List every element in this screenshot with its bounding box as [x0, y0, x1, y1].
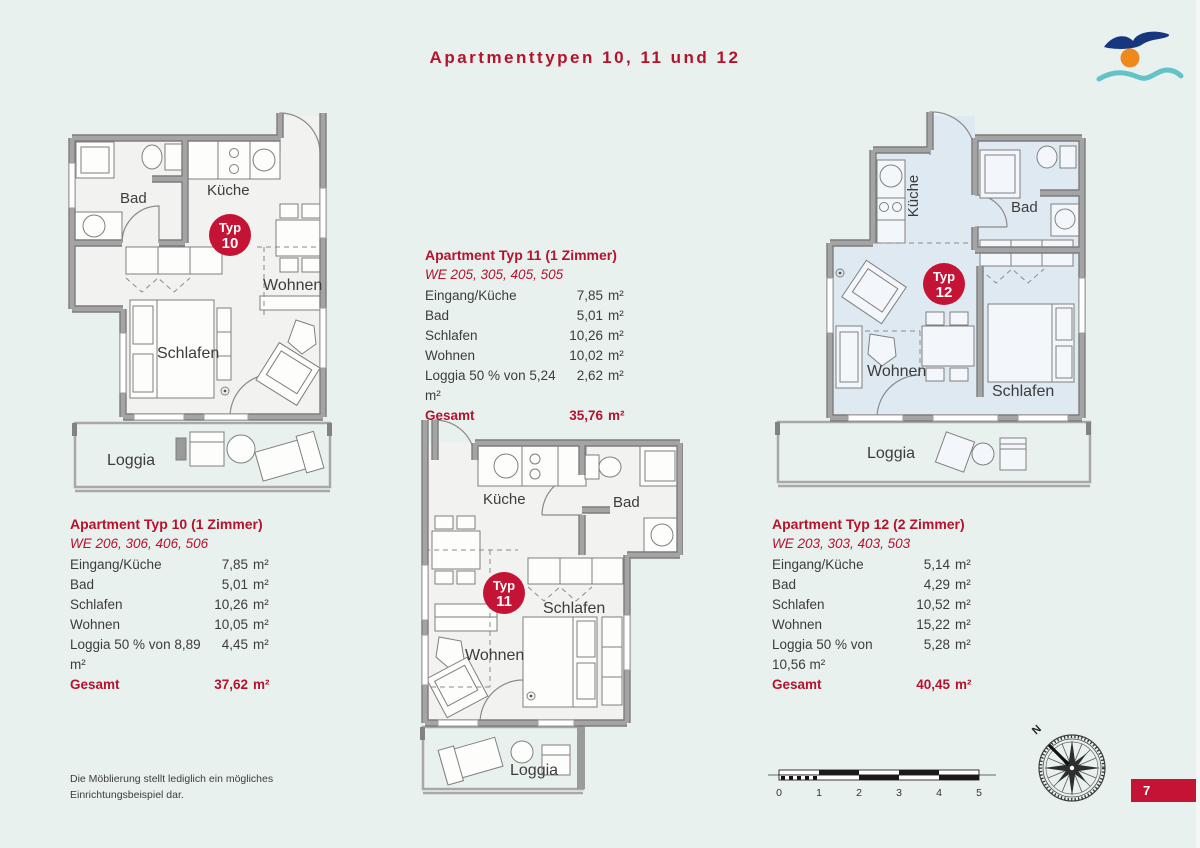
kitchen-counter	[478, 446, 586, 486]
kitchen-counter	[188, 141, 280, 179]
page-edge	[1196, 0, 1200, 848]
compass-north-label: N	[1030, 723, 1044, 737]
loggia-furniture	[176, 431, 324, 485]
disclaimer: Die Möblierung stellt lediglich ein mögl…	[70, 772, 273, 804]
brochure-page: Apartmenttypen 10, 11 und 12	[0, 0, 1200, 848]
gull-icon	[1104, 32, 1169, 49]
typ10-badge: Typ 10	[209, 214, 251, 256]
floorplan-typ10: Bad Küche Wohnen Schlafen Loggia Typ 10	[64, 108, 334, 498]
loggia-typ12	[778, 422, 1090, 482]
room-label-kueche: Küche	[207, 182, 250, 199]
area-row: Loggia 50 % von 10,56 m²5,28m²	[772, 635, 980, 675]
area-row: Wohnen10,05m²	[70, 615, 278, 635]
room-label-wohnen: Wohnen	[867, 363, 926, 380]
area-row: Loggia 50 % von 8,89 m²4,45m²	[70, 635, 278, 675]
area-row: Eingang/Küche7,85m²	[70, 555, 278, 575]
scale-label: 2	[856, 787, 862, 799]
area-row: Bad4,29m²	[772, 575, 980, 595]
loggia-furniture	[935, 432, 1026, 472]
bedroom-furniture	[523, 558, 623, 707]
area-row: Eingang/Küche7,85m²	[425, 286, 633, 306]
svg-text:12: 12	[936, 284, 953, 301]
area-row: Schlafen10,52m²	[772, 595, 980, 615]
sun-icon	[1121, 49, 1140, 68]
room-label-bad: Bad	[613, 494, 640, 511]
svg-text:Typ: Typ	[493, 578, 515, 593]
scale-label: 1	[816, 787, 822, 799]
page-number-badge: 7	[1131, 779, 1196, 802]
bedroom-furniture	[988, 304, 1074, 382]
room-label-bad: Bad	[120, 190, 147, 207]
area-row: Wohnen15,22m²	[772, 615, 980, 635]
room-label-schlafen: Schlafen	[543, 600, 605, 617]
typ10-data-table: Apartment Typ 10 (1 Zimmer) WE 206, 306,…	[70, 514, 278, 695]
floorplan-typ11: Küche Bad Schlafen Wohnen Loggia Typ 11	[418, 415, 683, 810]
compass-rose: N	[1022, 718, 1122, 818]
table-heading: Apartment Typ 11 (1 Zimmer)	[425, 245, 633, 265]
room-label-kueche: Küche	[905, 175, 922, 218]
area-row: Bad5,01m²	[70, 575, 278, 595]
we-units-line: WE 203, 303, 403, 503	[772, 534, 980, 554]
scale-bar: 0 1 2 3 4 5	[768, 762, 998, 804]
room-label-loggia: Loggia	[510, 762, 558, 779]
total-row: Gesamt37,62m²	[70, 675, 278, 695]
svg-text:Typ: Typ	[219, 220, 241, 235]
room-label-schlafen: Schlafen	[992, 383, 1054, 400]
total-row: Gesamt40,45m²	[772, 675, 980, 695]
area-row: Bad5,01m²	[425, 306, 633, 326]
table-heading: Apartment Typ 10 (1 Zimmer)	[70, 514, 278, 534]
page-title: Apartmenttypen 10, 11 und 12	[0, 48, 1170, 68]
wave-icon	[1099, 70, 1181, 79]
room-label-loggia: Loggia	[867, 445, 915, 462]
disclaimer-line2: Einrichtungsbeispiel dar.	[70, 788, 273, 804]
area-row: Wohnen10,02m²	[425, 346, 633, 366]
area-row: Schlafen10,26m²	[70, 595, 278, 615]
svg-text:Typ: Typ	[933, 269, 955, 284]
room-label-bad: Bad	[1011, 199, 1038, 216]
room-label-kueche: Küche	[483, 491, 526, 508]
we-units-line: WE 205, 305, 405, 505	[425, 265, 633, 285]
typ12-data-table: Apartment Typ 12 (2 Zimmer) WE 203, 303,…	[772, 514, 980, 695]
brand-logo	[1096, 26, 1184, 90]
area-row: Schlafen10,26m²	[425, 326, 633, 346]
typ11-data-table: Apartment Typ 11 (1 Zimmer) WE 205, 305,…	[425, 245, 633, 426]
scale-label: 4	[936, 787, 942, 799]
room-label-schlafen: Schlafen	[157, 345, 219, 362]
svg-text:11: 11	[496, 593, 512, 610]
scale-label: 3	[896, 787, 902, 799]
table-heading: Apartment Typ 12 (2 Zimmer)	[772, 514, 980, 534]
we-units-line: WE 206, 306, 406, 506	[70, 534, 278, 554]
typ11-badge: Typ 11	[483, 572, 525, 614]
scale-label: 5	[976, 787, 982, 799]
area-row: Eingang/Küche5,14m²	[772, 555, 980, 575]
kitchen-counter	[877, 160, 905, 243]
disclaimer-line1: Die Möblierung stellt lediglich ein mögl…	[70, 772, 273, 788]
room-label-loggia: Loggia	[107, 452, 155, 469]
area-row: Loggia 50 % von 5,24 m²2,62m²	[425, 366, 633, 406]
scale-label: 0	[776, 787, 782, 799]
svg-text:10: 10	[222, 235, 239, 252]
room-label-wohnen: Wohnen	[465, 647, 524, 664]
typ12-badge: Typ 12	[923, 263, 965, 305]
room-label-wohnen: Wohnen	[263, 277, 322, 294]
floorplan-typ12: Küche Bad Wohnen Schlafen Loggia Typ 12	[768, 108, 1098, 498]
total-row: Gesamt35,76m²	[425, 406, 633, 426]
